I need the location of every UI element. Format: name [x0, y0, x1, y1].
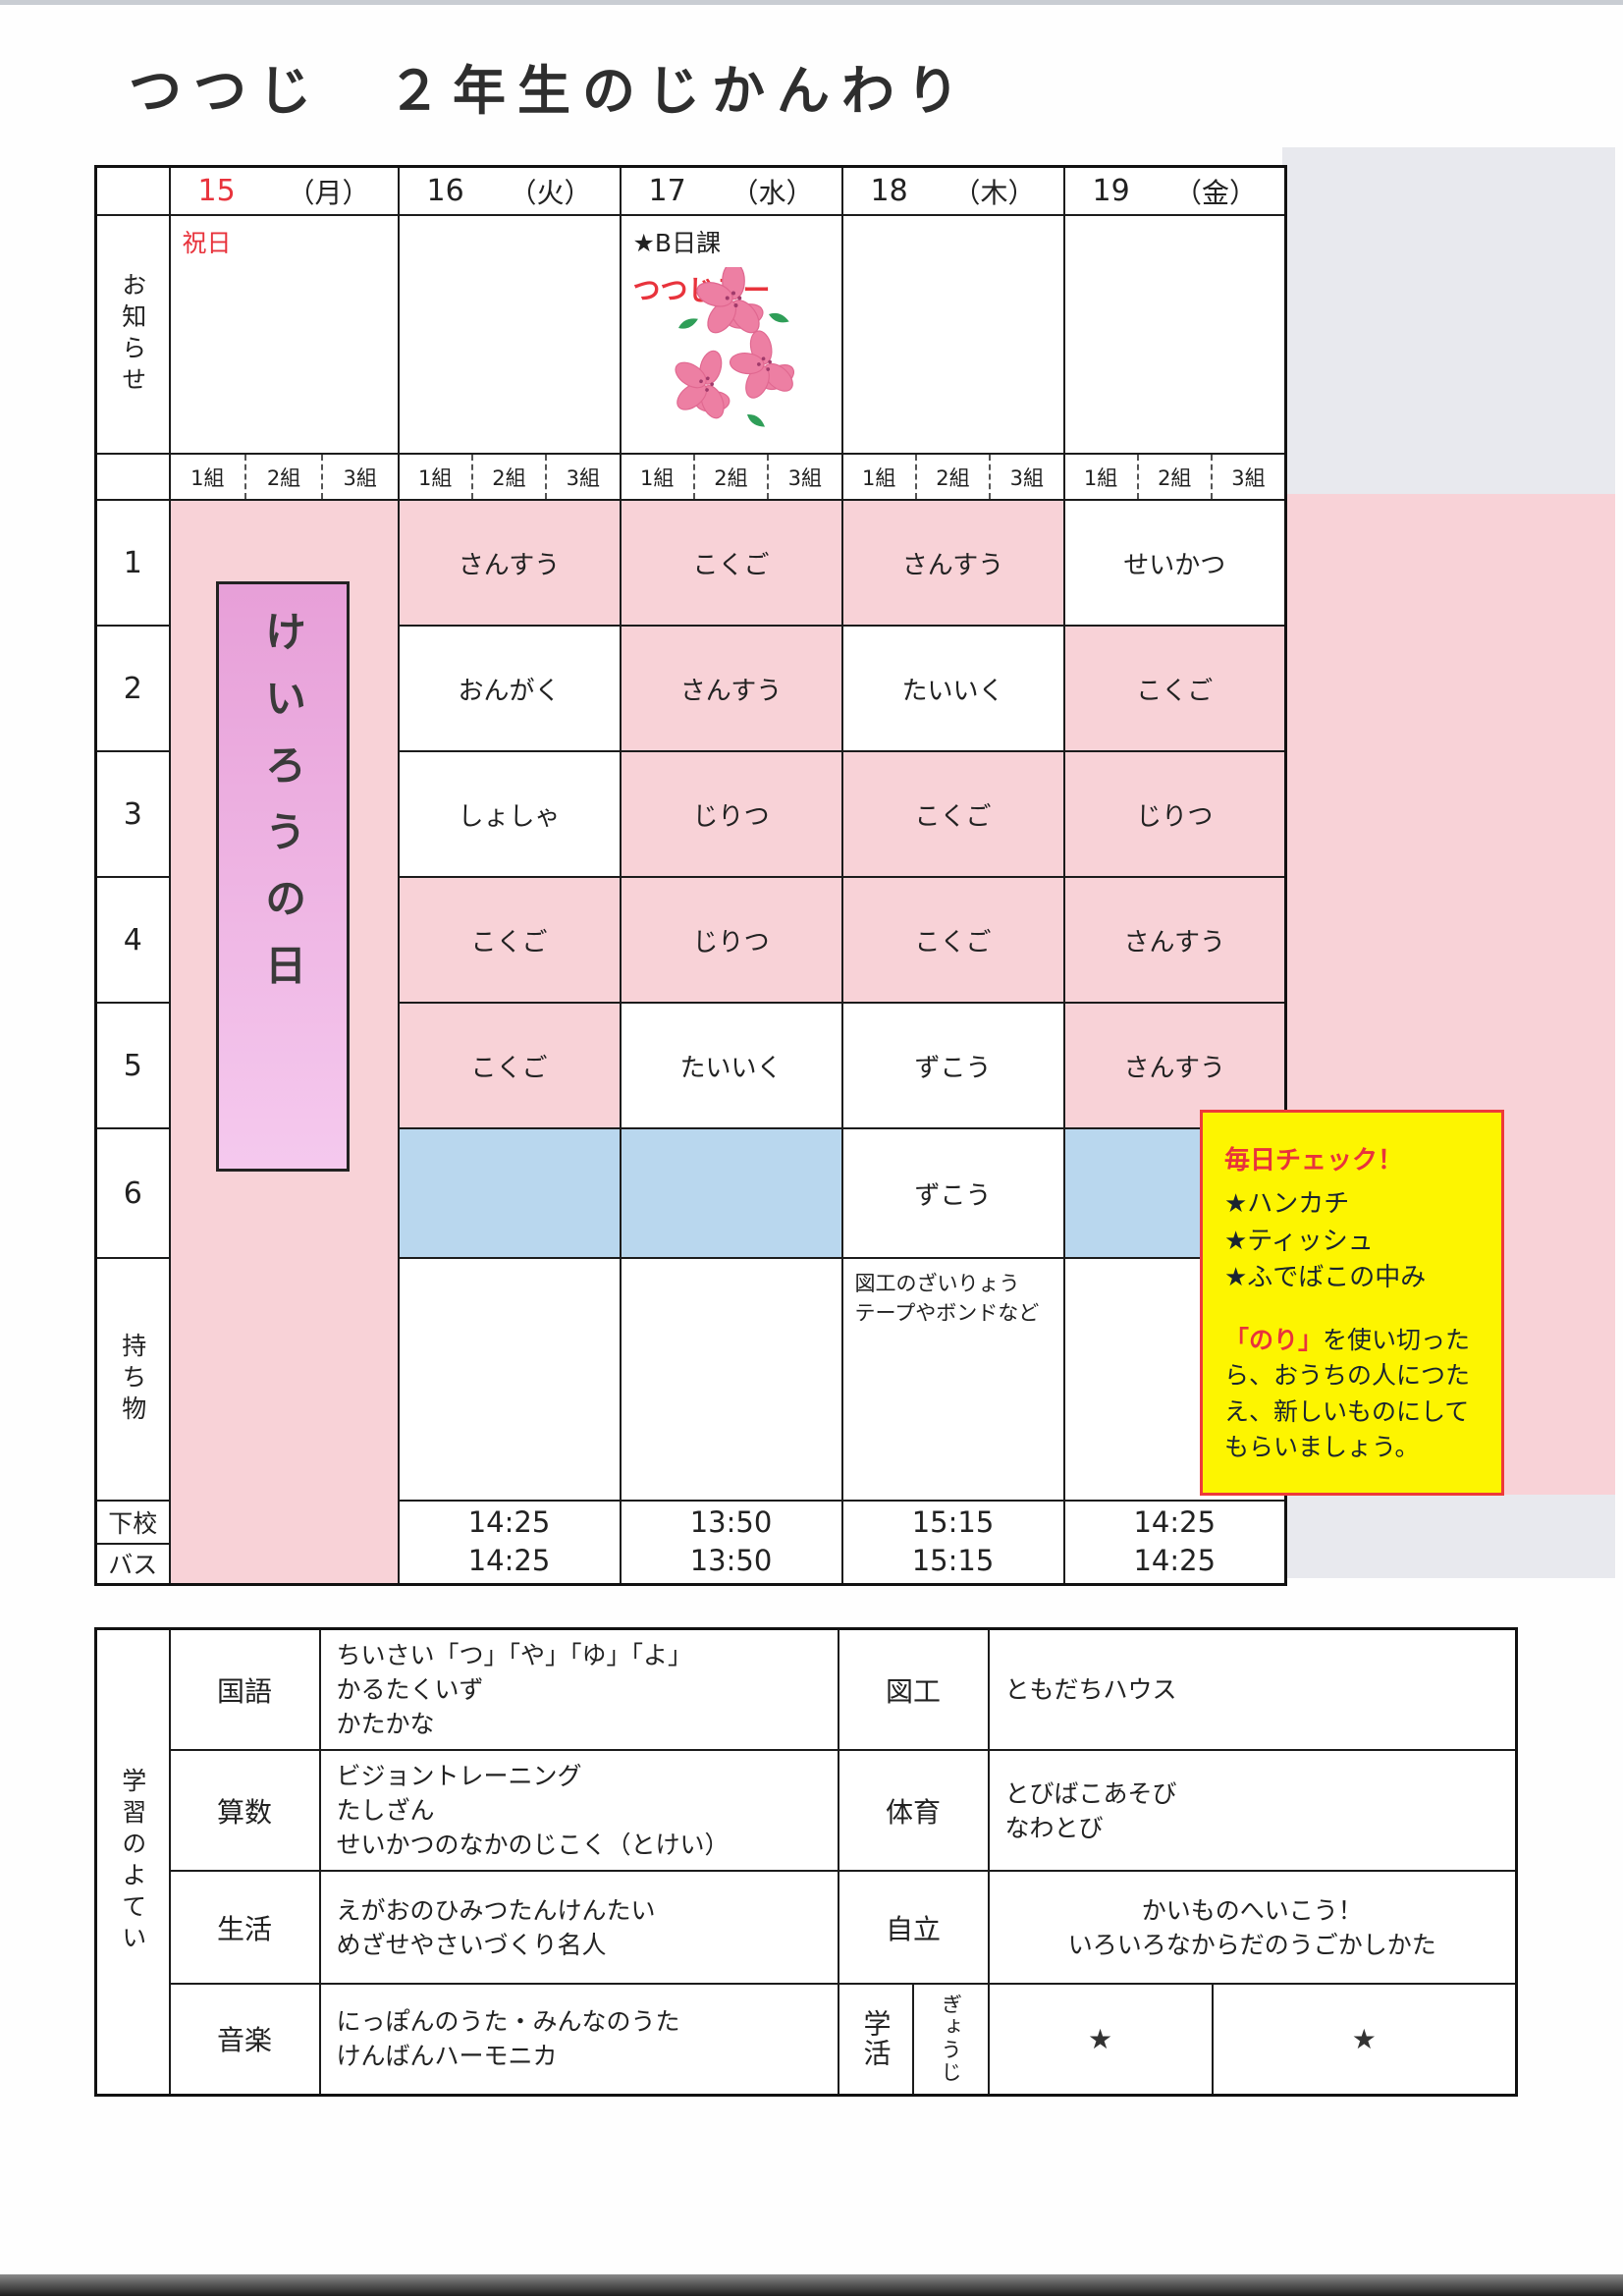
- group-2: 2組: [244, 455, 321, 499]
- cell-p2-tue: おんがく: [399, 626, 621, 751]
- azalea-flowers-illustration: [671, 267, 796, 436]
- times-fri: 14:25 14:25: [1064, 1501, 1286, 1584]
- scanned-timetable-page: つつじ ２年生のじかんわり 15 （月） 16 （火）: [0, 0, 1623, 2296]
- date-friday: 19 （金）: [1064, 167, 1286, 216]
- subject-zukou: 図工: [839, 1629, 989, 1751]
- subject-jiritsu: 自立: [839, 1871, 989, 1984]
- dow-thursday: （木）: [952, 172, 1035, 211]
- note-heading: 毎日チェック！: [1224, 1140, 1484, 1176]
- subject-kokugo: 国語: [170, 1629, 320, 1751]
- dismissal-time-thu: 15:15: [843, 1503, 1063, 1542]
- daily-check-note: 毎日チェック！ ★ハンカチ ★ティッシュ ★ふでばこの中み 「のり」を使い切った…: [1200, 1110, 1504, 1496]
- cell-p4-wed: じりつ: [621, 877, 842, 1003]
- announce-label-cell: お知らせ: [96, 215, 170, 454]
- content-seikatsu-text: えがおのひみつたんけんたい めざせやさいづくり名人: [321, 1886, 838, 1970]
- period-2-label: 2: [96, 626, 170, 751]
- scan-bottom-edge: [0, 2274, 1623, 2296]
- content-kokugo: ちいさい「つ」「や」「ゆ」「よ」 かるたくいず かたかな: [320, 1629, 839, 1751]
- cell-p5-wed: たいいく: [621, 1003, 842, 1128]
- content-jiritsu: かいものへいこう！ いろいろなからだのうごかしかた: [989, 1871, 1517, 1984]
- period-5-label: 5: [96, 1003, 170, 1128]
- group-3: 3組: [321, 455, 398, 499]
- subject-gyouji: ぎょうじ: [913, 1984, 989, 2095]
- bus-time-wed: 13:50: [622, 1542, 841, 1580]
- cell-p2-thu: たいいく: [842, 626, 1064, 751]
- dismissal-time-wed: 13:50: [622, 1503, 841, 1542]
- announce-tuesday: [399, 215, 621, 454]
- cell-p1-thu: さんすう: [842, 500, 1064, 626]
- group-label-cell: [96, 454, 170, 500]
- subject-ongaku: 音楽: [170, 1984, 320, 2095]
- group-2: 2組: [471, 455, 545, 499]
- group-1: 1組: [843, 455, 915, 499]
- date-monday: 15 （月）: [170, 167, 399, 216]
- right-margin-gray-top: [1282, 147, 1615, 494]
- date-number-19: 19: [1093, 174, 1130, 208]
- banner-text: けいろうの日: [253, 584, 313, 1169]
- note-item-handkerchief: ★ハンカチ: [1224, 1186, 1484, 1224]
- cell-p3-fri: じりつ: [1064, 751, 1286, 877]
- dow-monday: （月）: [287, 172, 369, 211]
- period-1-label: 1: [96, 500, 170, 626]
- content-sansuu: ビジョントレーニング たしざん せいかつのなかのじこく（とけい）: [320, 1750, 839, 1871]
- date-number-16: 16: [427, 174, 464, 208]
- times-tue: 14:25 14:25: [399, 1501, 621, 1584]
- belongings-label-cell: 持ち物: [96, 1258, 170, 1501]
- b-schedule-label: ★B日課: [622, 216, 841, 267]
- dow-wednesday: （水）: [730, 172, 813, 211]
- group-1: 1組: [171, 455, 245, 499]
- date-number-17: 17: [649, 174, 686, 208]
- note-glue-highlight: 「のり」: [1224, 1326, 1323, 1354]
- dismissal-time-tue: 14:25: [400, 1503, 620, 1542]
- announce-label: お知らせ: [121, 272, 145, 398]
- announce-friday: [1064, 215, 1286, 454]
- note-item-pencilcase: ★ふでばこの中み: [1224, 1260, 1484, 1297]
- gakkatsu-star-1: ★: [989, 1984, 1213, 2095]
- cell-p6-wed: [621, 1128, 842, 1258]
- content-ongaku-text: にっぽんのうた・みんなのうた けんばんハーモニカ: [321, 1996, 838, 2081]
- cell-p5-tue: こくご: [399, 1003, 621, 1128]
- subject-gakkatsu: 学活: [839, 1984, 913, 2095]
- right-margin-gray-bottom: [1282, 1495, 1615, 1578]
- corner-cell: [96, 167, 170, 216]
- date-number-18: 18: [871, 174, 908, 208]
- times-wed: 13:50 13:50: [621, 1501, 842, 1584]
- date-wednesday: 17 （水）: [621, 167, 842, 216]
- scan-top-edge: [0, 0, 1623, 5]
- content-taiiku: とびばこあそび なわとび: [989, 1750, 1517, 1871]
- bus-label: バス: [96, 1544, 170, 1584]
- group-2: 2組: [693, 455, 767, 499]
- groups-tuesday: 1組 2組 3組: [399, 454, 621, 500]
- note-item-tissue: ★ティッシュ: [1224, 1224, 1484, 1261]
- belongings-thursday-text: 図工のざいりょう テープやボンドなど: [843, 1259, 1063, 1339]
- content-sansuu-text: ビジョントレーニング たしざん せいかつのなかのじこく（とけい）: [321, 1751, 838, 1870]
- gakkatsu-star-2: ★: [1213, 1984, 1517, 2095]
- cell-p4-tue: こくご: [399, 877, 621, 1003]
- subject-gyouji-text: ぎょうじ: [936, 1994, 965, 2084]
- content-kokugo-text: ちいさい「つ」「や」「ゆ」「よ」 かるたくいず かたかな: [321, 1630, 838, 1749]
- belongings-thu: 図工のざいりょう テープやボンドなど: [842, 1258, 1064, 1501]
- cell-p4-thu: こくご: [842, 877, 1064, 1003]
- group-2: 2組: [1137, 455, 1211, 499]
- content-zukou-text: ともだちハウス: [990, 1665, 1516, 1715]
- subject-sansuu: 算数: [170, 1750, 320, 1871]
- holiday-label: 祝日: [171, 216, 398, 267]
- cell-p1-wed: こくご: [621, 500, 842, 626]
- respect-for-aged-day-banner: けいろうの日: [216, 581, 350, 1172]
- announce-monday: 祝日: [170, 215, 399, 454]
- subject-gakkatsu-text: 学活: [856, 2009, 895, 2068]
- period-6-label: 6: [96, 1128, 170, 1258]
- group-3: 3組: [989, 455, 1062, 499]
- bus-time-thu: 15:15: [843, 1542, 1063, 1580]
- content-ongaku: にっぽんのうた・みんなのうた けんばんハーモニカ: [320, 1984, 839, 2095]
- study-plan-table: 学習のよてい 国語 ちいさい「つ」「や」「ゆ」「よ」 かるたくいず かたかな 図…: [94, 1627, 1518, 2097]
- page-title: つつじ ２年生のじかんわり: [0, 47, 1100, 125]
- content-zukou: ともだちハウス: [989, 1629, 1517, 1751]
- dismissal-time-fri: 14:25: [1065, 1503, 1285, 1542]
- group-2: 2組: [915, 455, 989, 499]
- content-taiiku-text: とびばこあそび なわとび: [990, 1769, 1516, 1853]
- subject-seikatsu: 生活: [170, 1871, 320, 1984]
- cell-p4-fri: さんすう: [1064, 877, 1286, 1003]
- period-4-label: 4: [96, 877, 170, 1003]
- cell-p1-tue: さんすう: [399, 500, 621, 626]
- cell-p6-tue: [399, 1128, 621, 1258]
- group-3: 3組: [545, 455, 619, 499]
- cell-p1-fri: せいかつ: [1064, 500, 1286, 626]
- cell-p2-wed: さんすう: [621, 626, 842, 751]
- group-1: 1組: [400, 455, 471, 499]
- note-glue-paragraph: 「のり」を使い切ったら、おうちの人につたえ、新しいものにしてもらいましょう。: [1224, 1323, 1484, 1465]
- cell-p6-thu: ずこう: [842, 1128, 1064, 1258]
- announce-thursday: [842, 215, 1064, 454]
- study-plan-header: 学習のよてい: [121, 1768, 145, 1956]
- cell-p3-thu: こくご: [842, 751, 1064, 877]
- content-seikatsu: えがおのひみつたんけんたい めざせやさいづくり名人: [320, 1871, 839, 1984]
- cell-p3-tue: しょしゃ: [399, 751, 621, 877]
- cell-p5-thu: ずこう: [842, 1003, 1064, 1128]
- period-3-label: 3: [96, 751, 170, 877]
- belongings-label: 持ち物: [121, 1333, 145, 1427]
- content-jiritsu-text: かいものへいこう！ いろいろなからだのうごかしかた: [990, 1886, 1516, 1970]
- dow-tuesday: （火）: [509, 172, 591, 211]
- groups-thursday: 1組 2組 3組: [842, 454, 1064, 500]
- date-thursday: 18 （木）: [842, 167, 1064, 216]
- study-plan-header-cell: 学習のよてい: [96, 1629, 170, 2096]
- date-tuesday: 16 （火）: [399, 167, 621, 216]
- dismissal-label: 下校: [96, 1501, 170, 1544]
- group-1: 1組: [1065, 455, 1137, 499]
- bus-time-tue: 14:25: [400, 1542, 620, 1580]
- group-1: 1組: [622, 455, 693, 499]
- group-3: 3組: [767, 455, 840, 499]
- dow-friday: （金）: [1174, 172, 1257, 211]
- belongings-wed: [621, 1258, 842, 1501]
- cell-p3-wed: じりつ: [621, 751, 842, 877]
- belongings-tue: [399, 1258, 621, 1501]
- groups-friday: 1組 2組 3組: [1064, 454, 1286, 500]
- subject-taiiku: 体育: [839, 1750, 989, 1871]
- group-3: 3組: [1211, 455, 1284, 499]
- times-thu: 15:15 15:15: [842, 1501, 1064, 1584]
- groups-monday: 1組 2組 3組: [170, 454, 399, 500]
- bus-time-fri: 14:25: [1065, 1542, 1285, 1580]
- groups-wednesday: 1組 2組 3組: [621, 454, 842, 500]
- date-number-15: 15: [198, 174, 236, 208]
- cell-p2-fri: こくご: [1064, 626, 1286, 751]
